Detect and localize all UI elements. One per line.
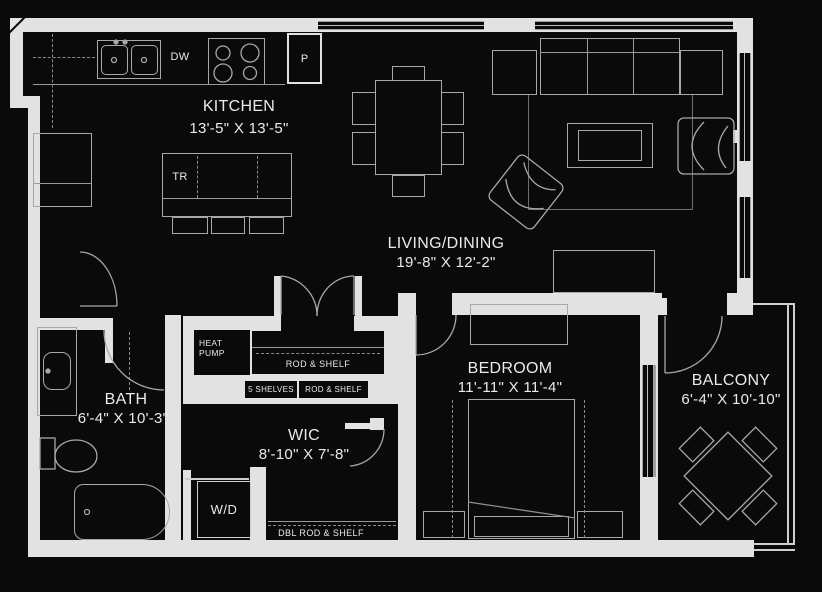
bedroom-door-arc xyxy=(416,315,456,355)
heat-pump-label: HEAT PUMP xyxy=(199,338,241,358)
floor-plan: P W/D xyxy=(0,0,822,592)
kitchen-dims: 13'-5" X 13'-5" xyxy=(149,120,329,137)
armchair-right xyxy=(678,118,734,174)
bedroom-label: BEDROOM xyxy=(435,360,585,378)
armchair-left xyxy=(487,153,566,232)
closet-double-door-arc-left xyxy=(281,276,317,316)
balcony-table-set xyxy=(652,400,805,553)
balcony-table xyxy=(684,432,772,520)
dishwasher-label: DW xyxy=(160,51,200,63)
wic-dims: 8'-10" X 7'-8" xyxy=(214,446,394,463)
vanity-faucet xyxy=(46,369,50,373)
wic-label: WIC xyxy=(229,427,379,445)
balcony-chair-2 xyxy=(742,490,777,525)
balcony-chair-1 xyxy=(679,427,714,462)
bath-dims: 6'-4" X 10'-3" xyxy=(33,410,213,427)
shelves-label: 5 SHELVES xyxy=(245,385,297,394)
burner-4 xyxy=(244,67,257,80)
burner-1 xyxy=(216,46,230,60)
balcony-label: BALCONY xyxy=(656,372,806,390)
bath-door-arc xyxy=(104,330,164,390)
bath-label: BATH xyxy=(51,391,201,409)
bed-fold-line xyxy=(468,502,575,518)
hall-door-arc xyxy=(80,252,117,306)
kitchen-label: KITCHEN xyxy=(164,98,314,116)
toilet-tank xyxy=(40,438,55,469)
burner-2 xyxy=(241,44,259,62)
sink-drain-left xyxy=(112,58,117,63)
plan-linework-overlay xyxy=(0,0,822,592)
living-dining-dims: 19'-8" X 12'-2" xyxy=(356,254,536,271)
sink-drain-right xyxy=(142,58,147,63)
living-dining-label: LIVING/DINING xyxy=(371,235,521,253)
dbl-rod-shelf-label: DBL ROD & SHELF xyxy=(266,528,376,538)
tub-drain xyxy=(85,510,90,515)
balcony-dims: 6'-4" X 10'-10" xyxy=(646,391,816,408)
corner-notch xyxy=(9,17,25,33)
balcony-door-arc xyxy=(665,316,722,373)
burner-3 xyxy=(214,64,232,82)
balcony-chair-4 xyxy=(679,490,714,525)
balcony-chair-3 xyxy=(742,427,777,462)
closet-rod-shelf-label: ROD & SHELF xyxy=(252,359,384,369)
closet-double-door-arc-right xyxy=(317,276,354,316)
trash-label: TR xyxy=(163,171,197,183)
sink-faucet-1 xyxy=(114,40,118,44)
toilet-bowl xyxy=(55,440,97,472)
wic-rod-shelf-label: ROD & SHELF xyxy=(299,385,368,394)
sink-faucet-2 xyxy=(123,40,127,44)
bedroom-dims: 11'-11" X 11'-4" xyxy=(420,379,600,396)
